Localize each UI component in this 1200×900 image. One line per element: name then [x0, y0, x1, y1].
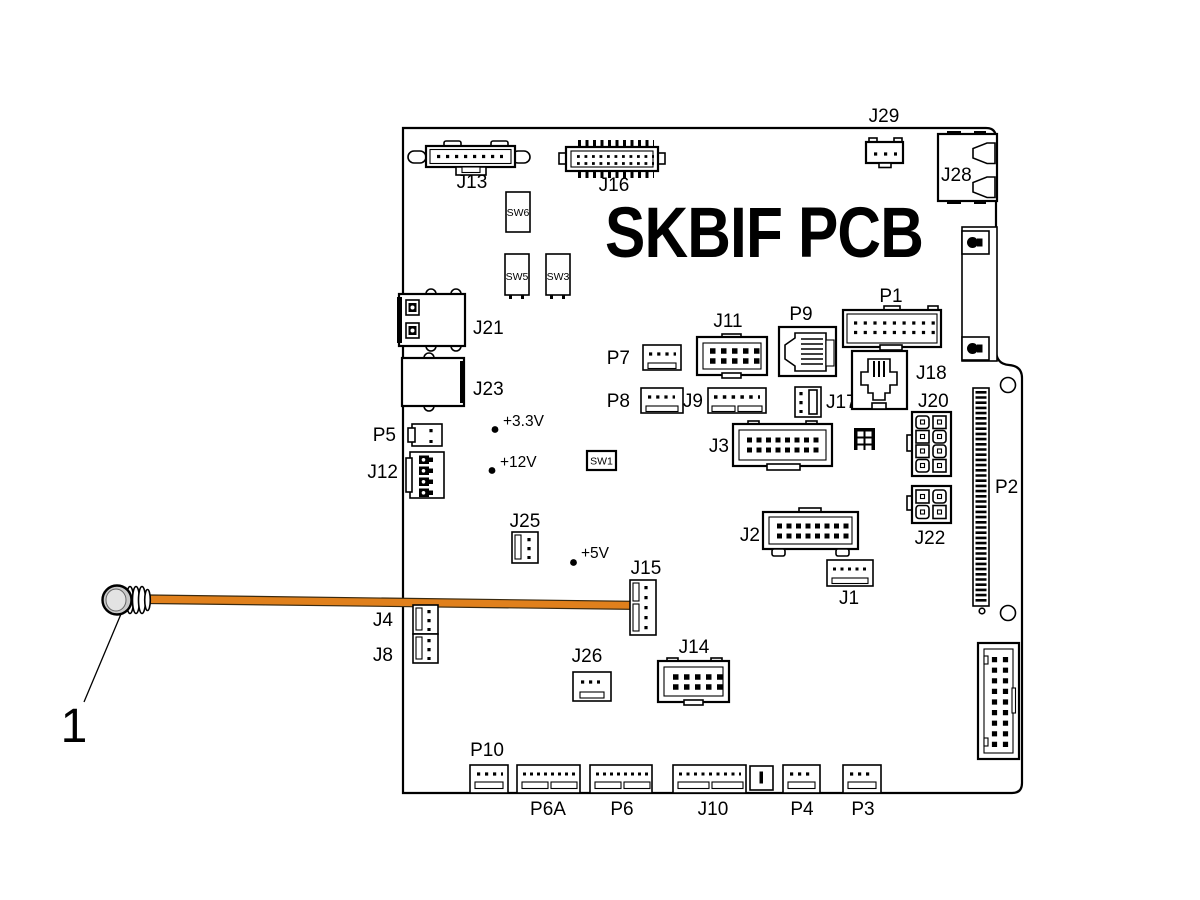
label-j11: J11 [713, 311, 742, 332]
label-j20: J20 [918, 391, 949, 412]
connector-j16 [559, 144, 665, 175]
label-p2: P2 [995, 477, 1018, 498]
label-j10: J10 [698, 799, 729, 820]
label-p4: P4 [790, 799, 814, 820]
dip-component [854, 428, 875, 451]
connector-p10 [470, 765, 508, 793]
connector-p6a [517, 765, 580, 793]
connector-p8 [641, 388, 683, 413]
label-p8: P8 [607, 391, 630, 412]
label-p5: P5 [373, 425, 396, 446]
connector-p6 [590, 765, 652, 793]
label-p7: P7 [607, 348, 630, 369]
label-tp-3v3: +3.3V [503, 413, 545, 430]
label-j16: J16 [599, 175, 630, 196]
connector-j8 [413, 634, 438, 663]
label-p3: P3 [851, 799, 874, 820]
label-p6a: P6A [530, 799, 566, 820]
connector-p9 [779, 327, 836, 376]
connector-bottom-right [978, 643, 1019, 759]
label-p9: P9 [789, 304, 812, 325]
connector-j29 [866, 138, 903, 168]
label-j26: J26 [572, 646, 603, 667]
connector-p2 [973, 388, 989, 614]
label-tp-12v: +12V [500, 454, 537, 471]
connector-j26 [573, 672, 611, 701]
label-j14: J14 [679, 637, 710, 658]
connector-p5 [408, 424, 442, 446]
mounting-hole-top [1001, 378, 1016, 393]
connector-j10 [673, 765, 746, 793]
label-j28: J28 [941, 165, 972, 186]
callout-number: 1 [61, 700, 88, 753]
label-j15: J15 [631, 558, 662, 579]
mounting-hole-bottom [1001, 606, 1016, 621]
connector-j15 [630, 580, 656, 635]
label-j8: J8 [373, 645, 393, 666]
connector-j22 [907, 486, 951, 523]
connector-j17 [795, 387, 821, 417]
label-p10: P10 [470, 740, 504, 761]
label-j12: J12 [367, 462, 398, 483]
testpoint-5v [570, 559, 577, 566]
pcb-diagram: J13 J16 J29 J28 [0, 0, 1200, 900]
edge-bracket [962, 227, 997, 361]
connector-p3 [843, 765, 881, 793]
connector-j3 [733, 421, 832, 470]
connector-j20 [907, 412, 951, 476]
label-j9: J9 [683, 391, 703, 412]
connector-j11 [697, 334, 767, 378]
label-j22: J22 [915, 528, 946, 549]
label-sw3: SW3 [547, 271, 570, 283]
diagram-canvas: J13 J16 J29 J28 [0, 0, 1200, 900]
label-j1: J1 [839, 588, 859, 609]
label-j29: J29 [869, 106, 900, 127]
label-sw1: SW1 [590, 456, 613, 468]
connector-j18 [852, 351, 907, 409]
connector-j9 [708, 388, 766, 413]
label-j2: J2 [740, 525, 760, 546]
label-p6: P6 [610, 799, 633, 820]
label-j18: J18 [916, 363, 947, 384]
label-j4: J4 [373, 610, 394, 631]
connector-p4 [783, 765, 820, 793]
label-p1: P1 [879, 286, 902, 307]
connector-j21 [397, 289, 465, 351]
board-title: SKBIF PCB [605, 194, 923, 273]
connector-p7 [643, 345, 681, 370]
connector-j4 [413, 605, 438, 634]
label-j25: J25 [510, 511, 541, 532]
connector-p1 [843, 306, 941, 350]
label-j3: J3 [709, 436, 729, 457]
connector-j1 [827, 560, 873, 586]
label-sw5: SW5 [506, 271, 529, 283]
connector-j14 [658, 658, 729, 705]
label-j21: J21 [473, 318, 504, 339]
coax-cable-connector [103, 586, 151, 615]
label-j13: J13 [457, 172, 488, 193]
label-j23: J23 [473, 379, 504, 400]
testpoint-12v [489, 467, 496, 474]
connector-j23 [402, 353, 464, 411]
label-sw6: SW6 [507, 207, 530, 219]
label-tp-5v: +5V [581, 545, 610, 562]
connector-j25 [512, 532, 538, 563]
connector-j2 [763, 508, 858, 556]
component-bottom-square [750, 766, 773, 790]
testpoint-3v3 [492, 426, 499, 433]
connector-j12 [406, 452, 444, 498]
